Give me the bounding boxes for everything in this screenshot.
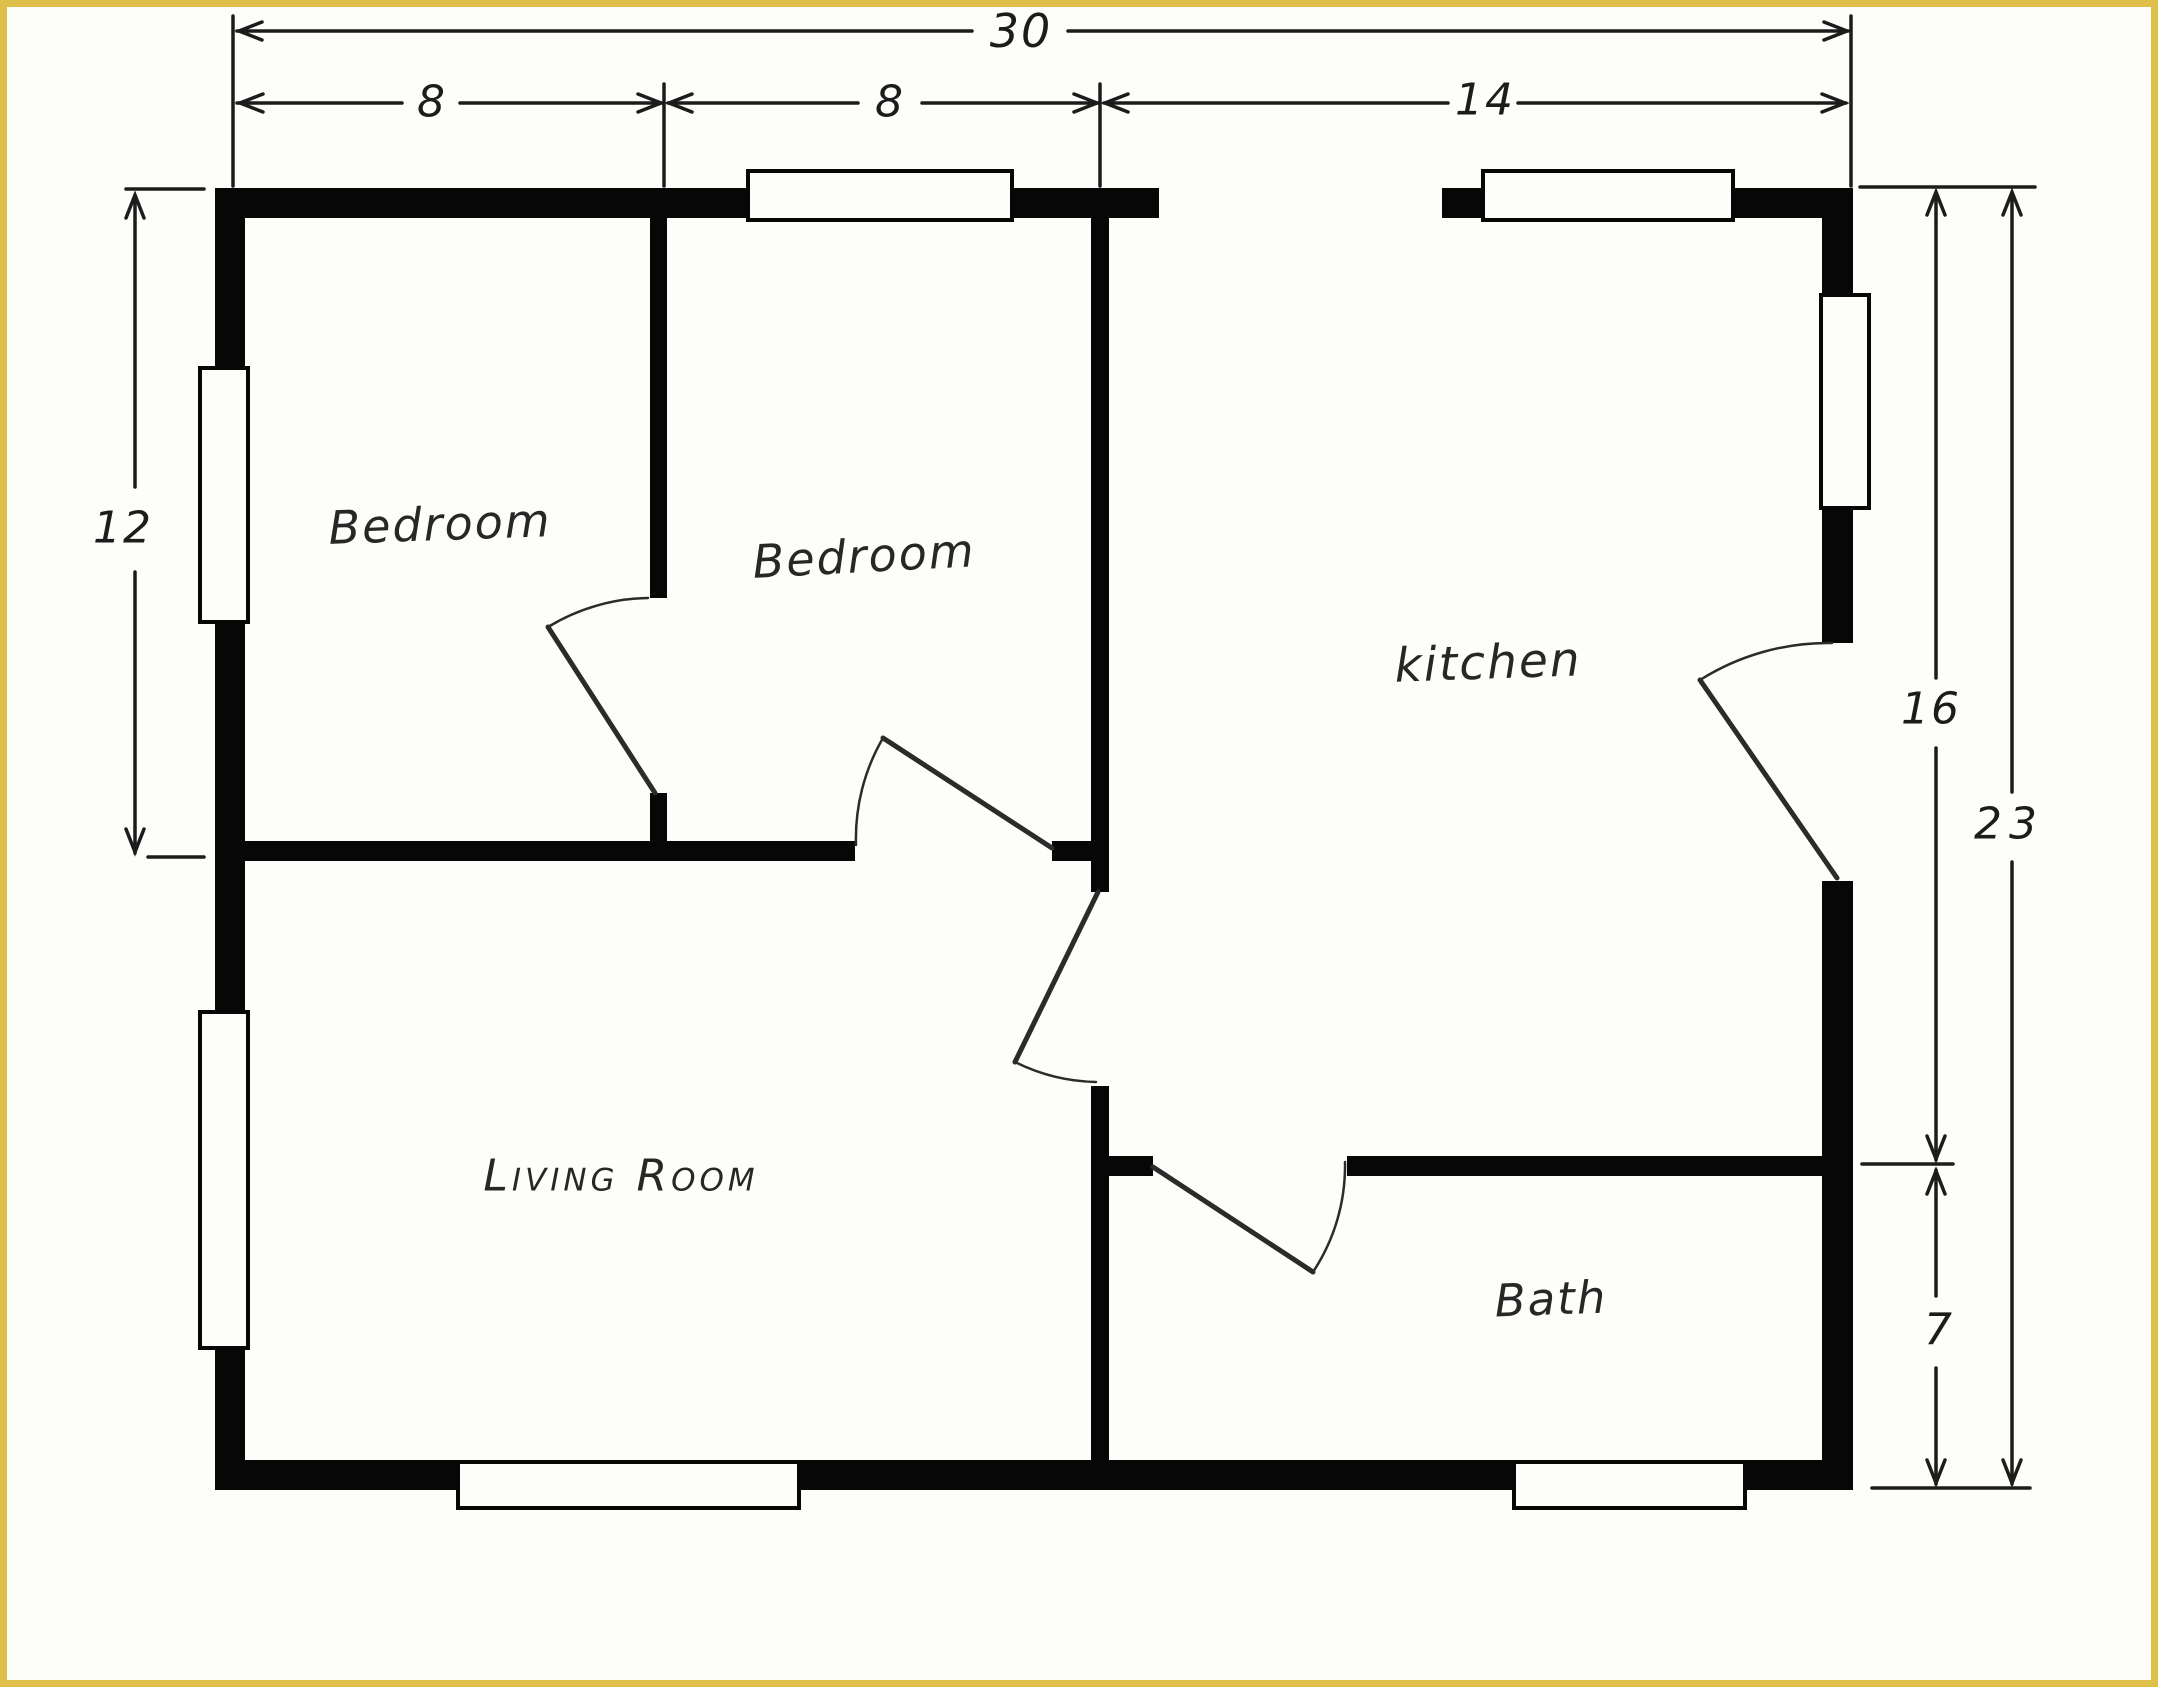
wall-hall-lower — [1091, 1086, 1109, 1460]
door-arc-bath — [1313, 1162, 1345, 1272]
window-right-kitchen — [1821, 295, 1869, 508]
window-top-kitchen — [1483, 171, 1733, 220]
room-label-kitchen: kitchen — [1394, 632, 1583, 693]
room-label-bath: Bath — [1494, 1271, 1608, 1328]
door-leaf-bedroom2 — [883, 738, 1052, 848]
room-label-living-room: Living Room — [483, 1151, 758, 1202]
room-label-bedroom-1: Bedroom — [328, 493, 553, 555]
wall-bedroom-divider — [650, 218, 667, 598]
door-leaf-kitchen — [1700, 680, 1837, 878]
window-left-living — [200, 1012, 248, 1348]
dim-label-total-depth: 23 — [1974, 799, 2044, 850]
door-arc-bedroom2 — [856, 738, 883, 845]
door-leaf-living-room — [1015, 892, 1098, 1062]
wall-top-bedrooms — [215, 188, 1159, 218]
door-arc-kitchen — [1700, 643, 1832, 680]
window-top-bedroom2 — [748, 171, 1012, 220]
dim-label-bedroom1-width: 8 — [417, 77, 447, 128]
wall-right-lower — [1822, 881, 1853, 1490]
dim-label-kitchen-width: 14 — [1455, 75, 1515, 126]
floor-plan-drawing — [0, 0, 2158, 1687]
wall-hall-upper — [1091, 218, 1109, 892]
wall-bath-door-stub — [1109, 1156, 1153, 1176]
window-bottom-living — [458, 1462, 799, 1508]
window-left-bedroom1 — [200, 368, 248, 622]
wall-bedrooms-bottom — [244, 841, 855, 861]
window-bottom-bath — [1514, 1462, 1745, 1508]
floor-plan-page: Bedroom Bedroom kitchen Living Room Bath… — [0, 0, 2158, 1687]
dim-label-bath-depth: 7 — [1924, 1305, 1954, 1356]
dim-label-kitchen-depth: 16 — [1901, 684, 1961, 735]
wall-bath-top — [1347, 1156, 1822, 1176]
door-arc-living-room — [1015, 1062, 1096, 1082]
door-leaf-bedroom1 — [548, 627, 655, 793]
dim-label-total-width: 30 — [990, 4, 1053, 58]
wall-bedroom2-door-stub — [1052, 841, 1091, 861]
door-arc-bedroom1 — [548, 598, 648, 627]
door-leaf-bath — [1153, 1167, 1313, 1272]
dim-label-bedroom2-width: 8 — [875, 77, 905, 128]
dim-label-bedrooms-depth: 12 — [93, 503, 153, 554]
